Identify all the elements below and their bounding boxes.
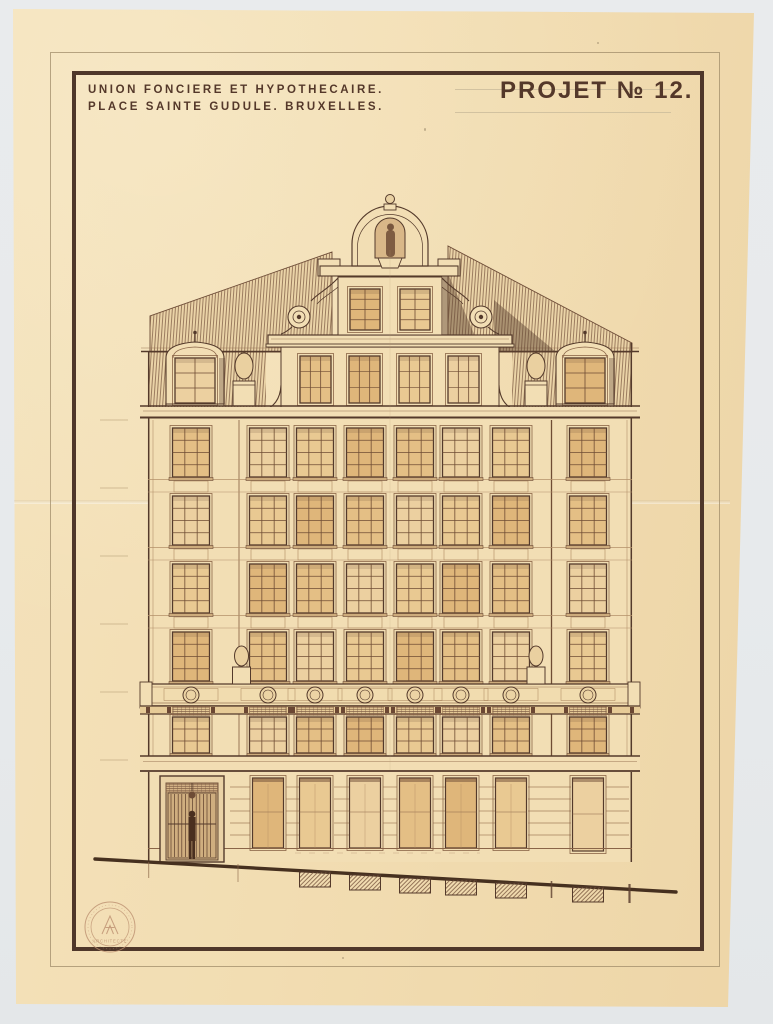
architect-stamp: ARCHITECTE	[85, 902, 135, 952]
scanned-drawing-background: UNION FONCIERE ET HYPOTHECAIRE. PLACE SA…	[0, 0, 773, 1024]
basement-windows	[149, 862, 630, 903]
building-elevation-svg: ARCHITECTE	[0, 0, 773, 1024]
stamp-text: ARCHITECTE	[93, 939, 128, 944]
